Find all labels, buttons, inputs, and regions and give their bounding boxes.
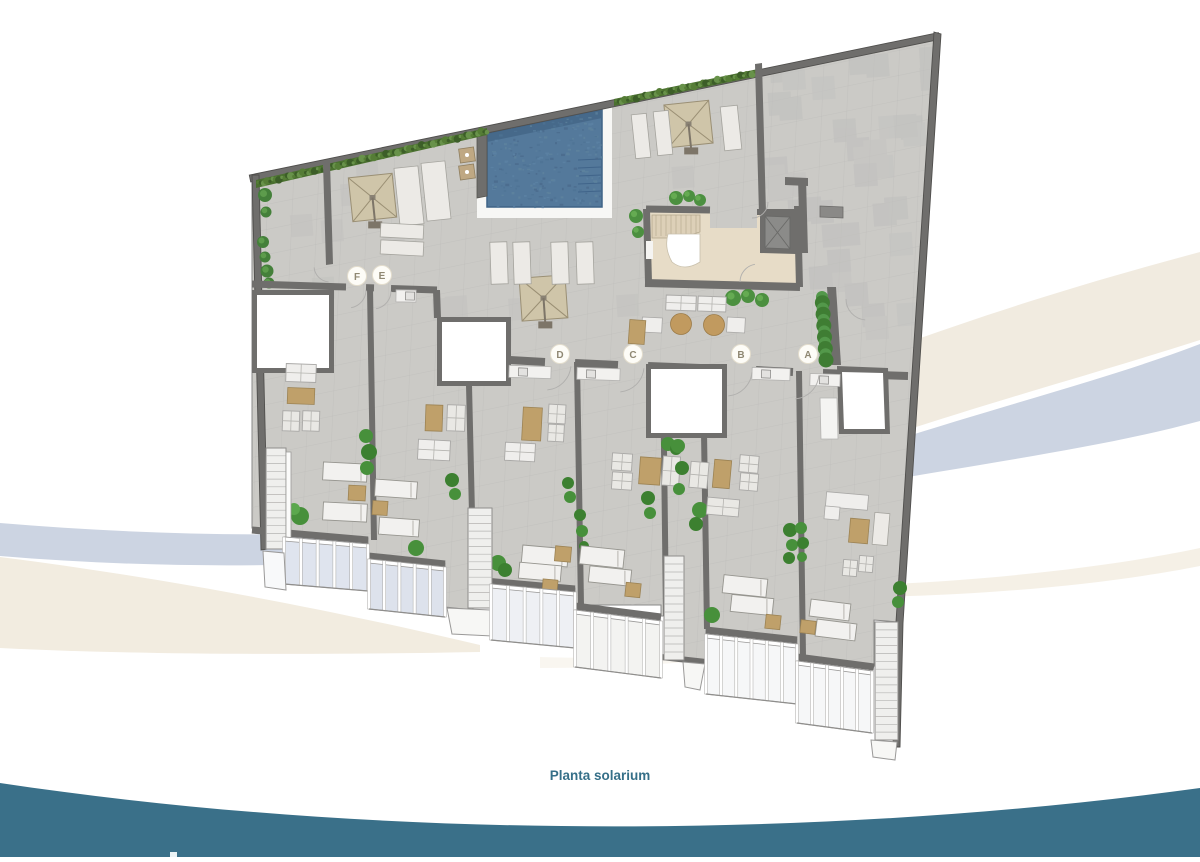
svg-text:E: E	[379, 271, 386, 282]
svg-text:B: B	[737, 350, 744, 361]
svg-text:Planta solarium: Planta solarium	[550, 768, 651, 783]
svg-text:F: F	[354, 272, 360, 283]
svg-text:C: C	[629, 350, 636, 361]
svg-text:A: A	[804, 350, 811, 361]
svg-text:D: D	[556, 350, 563, 361]
